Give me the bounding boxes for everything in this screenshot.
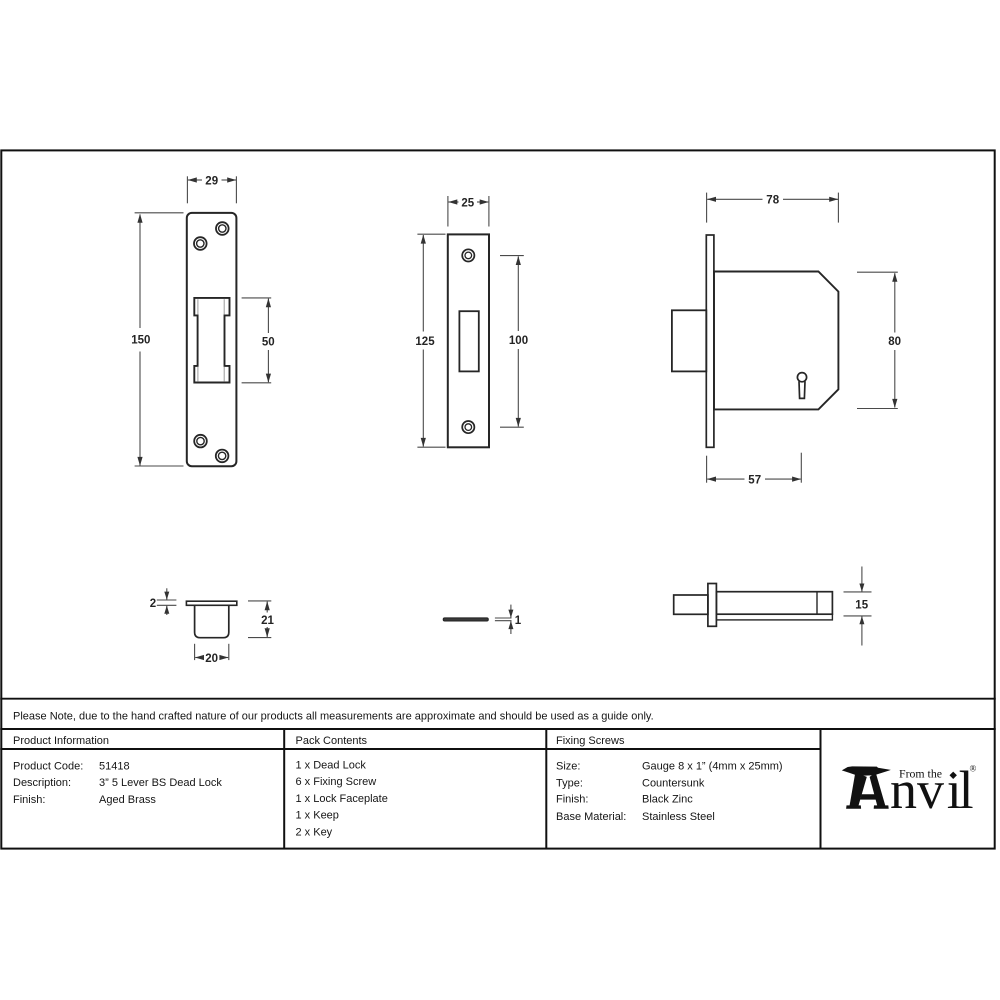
svg-text:Stainless Steel: Stainless Steel: [642, 811, 715, 823]
svg-text:51418: 51418: [99, 761, 130, 773]
svg-text:15: 15: [855, 599, 868, 611]
svg-text:Countersunk: Countersunk: [642, 777, 705, 789]
svg-text:125: 125: [415, 336, 435, 348]
svg-text:Pack Contents: Pack Contents: [296, 735, 368, 747]
svg-text:1 x Dead Lock: 1 x Dead Lock: [296, 759, 367, 771]
svg-text:50: 50: [262, 337, 275, 349]
svg-text:2 x Key: 2 x Key: [296, 827, 333, 839]
svg-text:Please Note, due to the hand c: Please Note, due to the hand crafted nat…: [13, 711, 654, 723]
svg-text:29: 29: [205, 175, 218, 187]
svg-text:80: 80: [888, 336, 901, 348]
svg-text:Fixing Screws: Fixing Screws: [556, 735, 625, 747]
svg-text:150: 150: [131, 335, 150, 347]
svg-text:1 x Keep: 1 x Keep: [296, 810, 339, 822]
svg-text:1: 1: [515, 615, 522, 627]
svg-text:Black Zinc: Black Zinc: [642, 794, 693, 806]
svg-text:78: 78: [766, 195, 779, 207]
svg-text:Gauge 8 x 1” (4mm x 25mm): Gauge 8 x 1” (4mm x 25mm): [642, 761, 783, 773]
svg-text:®: ®: [970, 764, 977, 774]
svg-text:6 x Fixing Screw: 6 x Fixing Screw: [296, 776, 377, 788]
svg-text:57: 57: [748, 474, 761, 486]
svg-text:3” 5 Lever BS Dead Lock: 3” 5 Lever BS Dead Lock: [99, 777, 222, 789]
svg-text:Finish:: Finish:: [556, 794, 588, 806]
svg-text:Description:: Description:: [13, 777, 71, 789]
svg-text:Base Material:: Base Material:: [556, 811, 626, 823]
svg-text:Size:: Size:: [556, 761, 580, 773]
svg-text:2: 2: [150, 598, 156, 610]
svg-text:25: 25: [461, 197, 474, 209]
svg-text:Finish:: Finish:: [13, 794, 45, 806]
svg-text:20: 20: [205, 653, 218, 665]
svg-text:1 x Lock Faceplate: 1 x Lock Faceplate: [296, 793, 388, 805]
svg-text:Aged Brass: Aged Brass: [99, 794, 156, 806]
svg-text:Type:: Type:: [556, 777, 583, 789]
svg-text:From the: From the: [899, 767, 942, 781]
svg-text:100: 100: [509, 335, 528, 347]
svg-text:21: 21: [261, 615, 274, 627]
svg-text:Product Code:: Product Code:: [13, 761, 83, 773]
svg-text:Product Information: Product Information: [13, 735, 109, 747]
